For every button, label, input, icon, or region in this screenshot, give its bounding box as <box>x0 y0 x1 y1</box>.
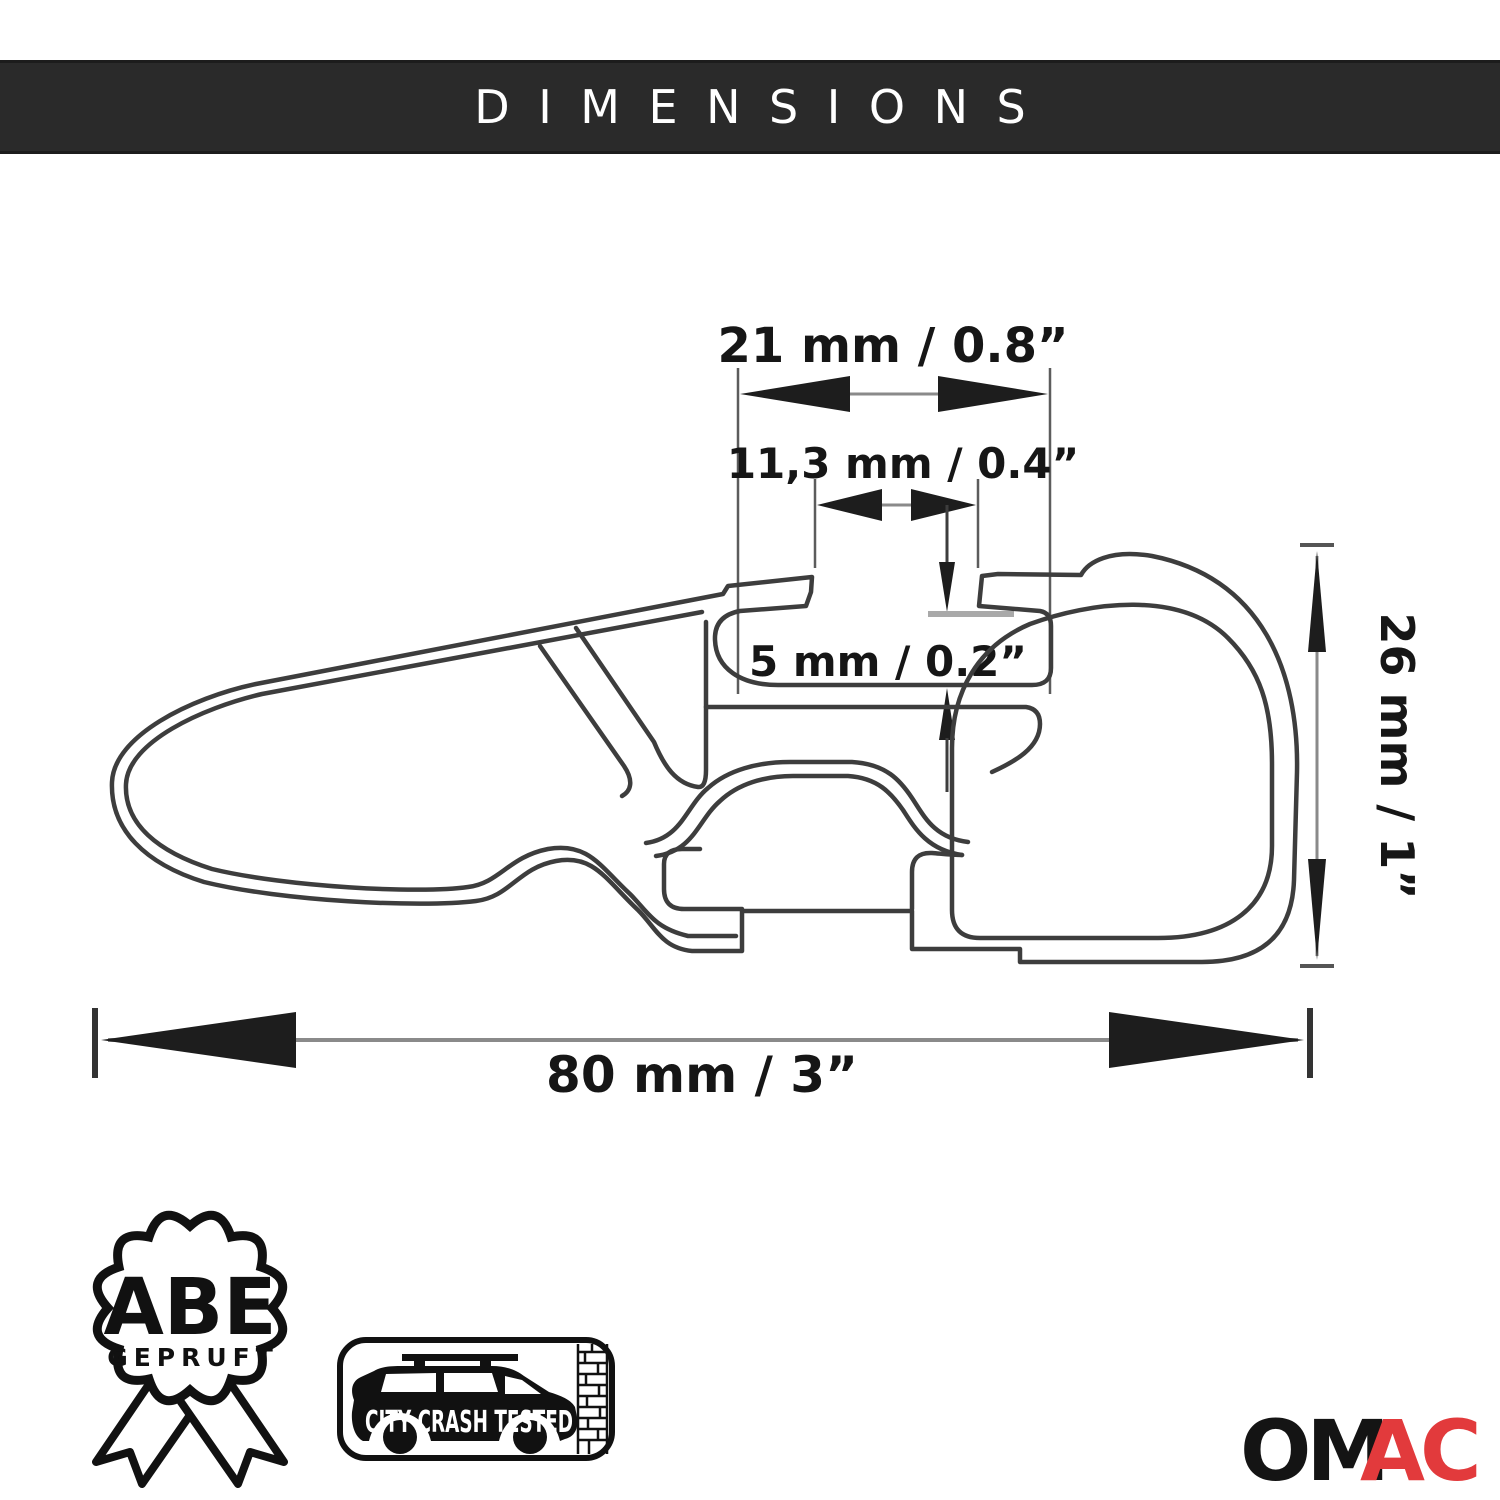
logo-ac: AC <box>1360 1402 1477 1500</box>
arrowhead-right <box>1109 1012 1304 1068</box>
arrowhead-left <box>101 1012 296 1068</box>
dimension-slot-depth: 5 mm / 0.2” <box>749 637 1027 792</box>
middle-cell <box>576 622 706 787</box>
dimension-height: 26 mm / 1” <box>1300 545 1424 966</box>
arrowhead-left <box>817 489 882 521</box>
dimension-label-slot-width: 11,3 mm / 0.4” <box>727 439 1079 488</box>
bottom-cavity-right <box>912 853 962 909</box>
dimension-label-height: 26 mm / 1” <box>1370 613 1424 900</box>
dimension-slot-width: 11,3 mm / 0.4” <box>727 439 1079 614</box>
dimension-total-width: 80 mm / 3” <box>95 1008 1310 1104</box>
arrowhead-left <box>740 376 850 412</box>
arrowhead-right <box>938 376 1048 412</box>
crash-test-label: CITY CRASH TESTED <box>365 1405 573 1440</box>
down-arrow <box>939 562 955 612</box>
technical-drawing-canvas: 21 mm / 0.8” 11,3 mm / 0.4” 5 mm / 0.2” <box>0 0 1500 1500</box>
dimension-label-top-width: 21 mm / 0.8” <box>717 318 1068 374</box>
omac-logo: OM AC <box>1240 1402 1477 1500</box>
arrowhead-down <box>1308 859 1326 960</box>
bottom-cavity-left <box>664 849 742 909</box>
channel-floor <box>706 707 1040 772</box>
dimension-label-total-width: 80 mm / 3” <box>546 1046 858 1104</box>
dimensions-infographic: DIMENSIONS 21 mm / 0.8” 11,3 mm / 0.4” <box>0 0 1500 1500</box>
gepruft-text: GEPRUFT <box>107 1343 279 1372</box>
crash-test-badge: CITY CRASH TESTED <box>340 1340 612 1458</box>
arrowhead-up <box>1308 551 1326 652</box>
dimension-label-slot-depth: 5 mm / 0.2” <box>749 637 1027 686</box>
dimension-top-width: 21 mm / 0.8” <box>717 318 1068 412</box>
abe-text: ABE <box>103 1263 276 1353</box>
crossbar-profile <box>112 554 1297 962</box>
abe-badge: ABE GEPRUFT <box>96 1215 284 1484</box>
arrowhead-right <box>911 489 976 521</box>
inner-contour-left <box>126 612 736 936</box>
web-diagonal <box>540 646 630 796</box>
